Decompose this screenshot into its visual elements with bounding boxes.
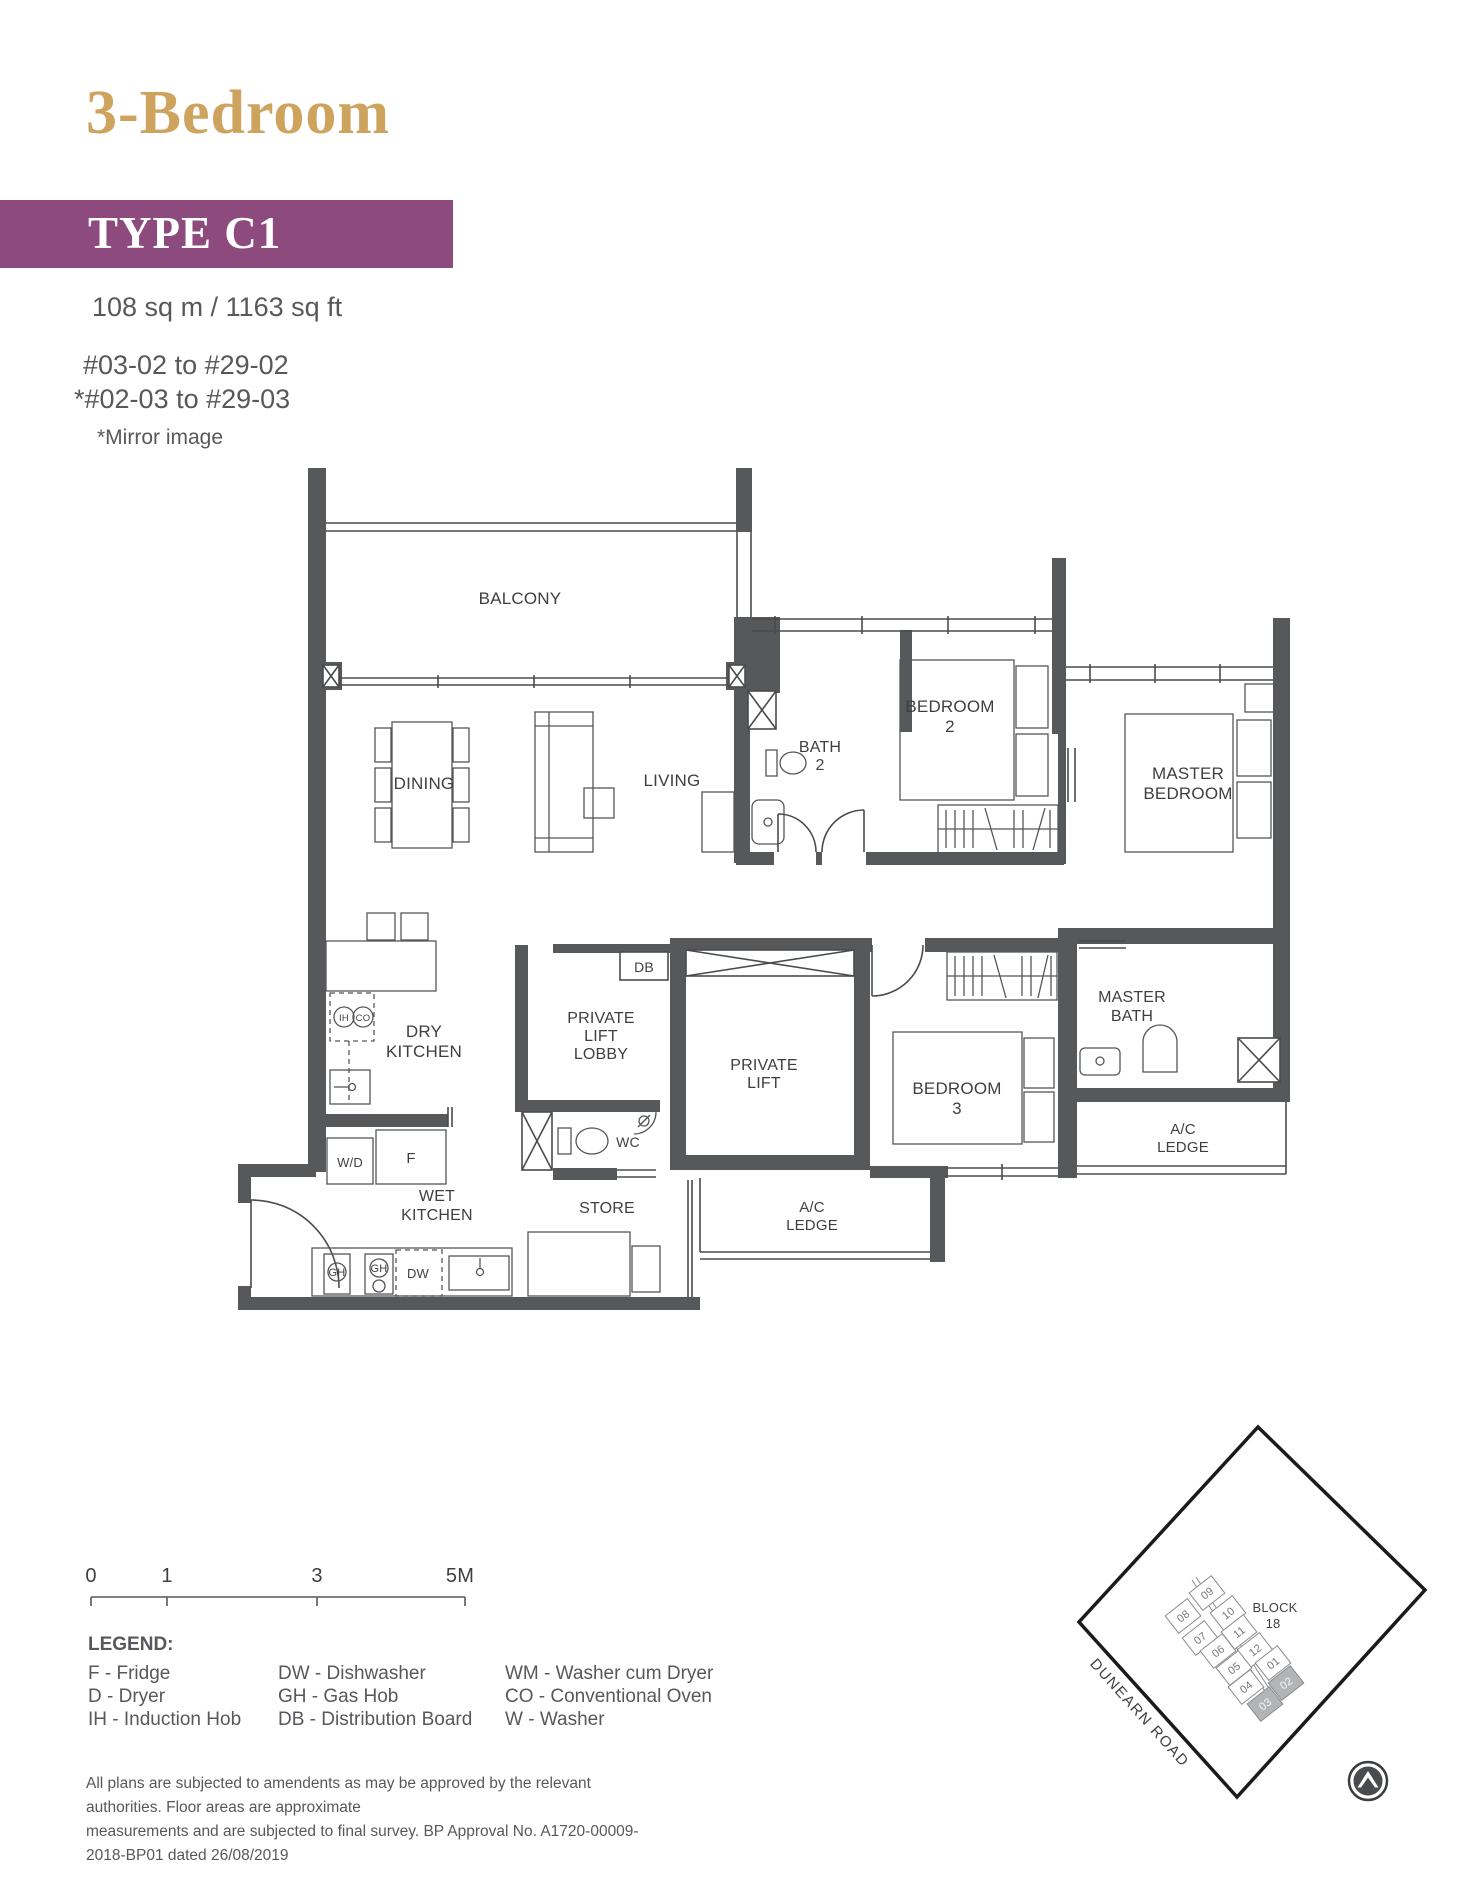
label-master-bedroom: MASTER [1152,764,1224,783]
legend-title: LEGEND: [88,1634,765,1656]
page-title: 3-Bedroom [86,78,390,149]
label-ac-ledge-center: A/C [799,1199,825,1216]
legend-item: IH - Induction Hob [88,1708,278,1731]
label-co: CO [356,1013,371,1024]
legend: LEGEND: F - Fridge D - Dryer IH - Induct… [88,1634,765,1731]
legend-item: W - Washer [505,1708,765,1731]
mirror-note: *Mirror image [97,426,223,450]
unit-range-2: *#02-03 to #29-03 [74,384,290,415]
label-dining: DINING [394,774,455,793]
legend-item: DB - Distribution Board [278,1708,505,1731]
label-db: DB [634,959,654,975]
furniture-sofa [535,712,734,852]
label-ac-ledge-right: A/C [1170,1121,1196,1138]
label-wd: W/D [337,1155,363,1170]
label-gh-2: GH [371,1263,388,1275]
unit-range-1: #03-02 to #29-02 [83,350,289,381]
master-bath-fixtures [1080,1025,1177,1075]
label-private-lift-lobby: PRIVATE [567,1010,635,1027]
label-dry-kitchen: DRY [406,1022,442,1041]
label-dw: DW [407,1266,430,1281]
scale-5m: 5M [446,1565,474,1587]
legend-item: GH - Gas Hob [278,1685,505,1708]
wardrobe-bedroom2 [938,805,1058,853]
svg-text:LIFT: LIFT [747,1075,781,1092]
disclaimer: All plans are subjected to amendents as … [86,1772,666,1868]
svg-text:LEDGE: LEDGE [786,1217,838,1234]
windows-and-ledges [326,523,1286,1297]
legend-item: D - Dryer [88,1685,278,1708]
site-units: 09 08 10 07 11 06 12 05 01 04 02 03 [1165,1576,1304,1722]
label-private-lift: PRIVATE [730,1057,798,1074]
disclaimer-line-2: measurements and are subjected to final … [86,1820,666,1868]
label-wet-kitchen: WET [419,1188,455,1205]
label-master-bath: MASTER [1098,989,1166,1006]
svg-text:18: 18 [1266,1616,1281,1631]
lift-shaft [686,950,854,976]
type-label: TYPE C1 [0,200,453,266]
label-living: LIVING [644,771,701,790]
label-gh-1: GH [329,1267,346,1279]
legend-item: CO - Conventional Oven [505,1685,765,1708]
svg-text:3: 3 [952,1099,962,1118]
scale-3: 3 [311,1565,322,1587]
svg-text:KITCHEN: KITCHEN [386,1042,462,1061]
label-bedroom2: BEDROOM [905,697,994,716]
bath2-fixtures [752,750,806,844]
svg-text:BATH: BATH [1111,1008,1153,1025]
svg-text:2: 2 [815,757,824,774]
legend-item: F - Fridge [88,1662,278,1685]
label-fridge: F [406,1150,415,1167]
svg-text:LOBBY: LOBBY [574,1046,628,1063]
svg-text:2: 2 [945,717,955,736]
block-label: BLOCK 18 [1252,1600,1297,1631]
svg-text:LIFT: LIFT [584,1028,618,1045]
floor-plan: BALCONY DINING LIVING BATH 2 BEDROOM 2 M… [225,455,1310,1315]
floor-plan-page: 3-Bedroom TYPE C1 108 sq m / 1163 sq ft … [0,0,1476,1890]
scale-0: 0 [85,1565,96,1587]
area-text: 108 sq m / 1163 sq ft [92,292,342,323]
wardrobe-bedroom3 [947,952,1057,1000]
label-store: STORE [579,1200,635,1217]
label-wc: WC [616,1134,640,1150]
label-bedroom3: BEDROOM [912,1079,1001,1098]
compass-icon [1349,1762,1387,1800]
wc-fixtures [558,1112,656,1154]
store-shelves [528,1232,660,1296]
scale-1: 1 [161,1565,172,1587]
bed-bedroom2 [900,660,1048,800]
label-ih: IH [339,1013,349,1024]
dry-kitchen-fittings [326,913,436,1104]
label-bath2: BATH [799,739,841,756]
svg-text:LEDGE: LEDGE [1157,1139,1209,1156]
road-label: DUNEARN ROAD [1086,1655,1192,1770]
legend-item: WM - Washer cum Dryer [505,1662,765,1685]
label-balcony: BALCONY [479,589,562,608]
legend-item: DW - Dishwasher [278,1662,505,1685]
type-banner: TYPE C1 [0,200,453,268]
disclaimer-line-1: All plans are subjected to amendents as … [86,1772,666,1820]
svg-text:KITCHEN: KITCHEN [401,1207,473,1224]
svg-text:BLOCK: BLOCK [1252,1600,1297,1615]
site-plan: 09 08 10 07 11 06 12 05 01 04 02 03 [1040,1412,1472,1812]
scale-bar: 0 1 3 5M [75,1555,485,1615]
svg-text:BEDROOM: BEDROOM [1143,784,1232,803]
